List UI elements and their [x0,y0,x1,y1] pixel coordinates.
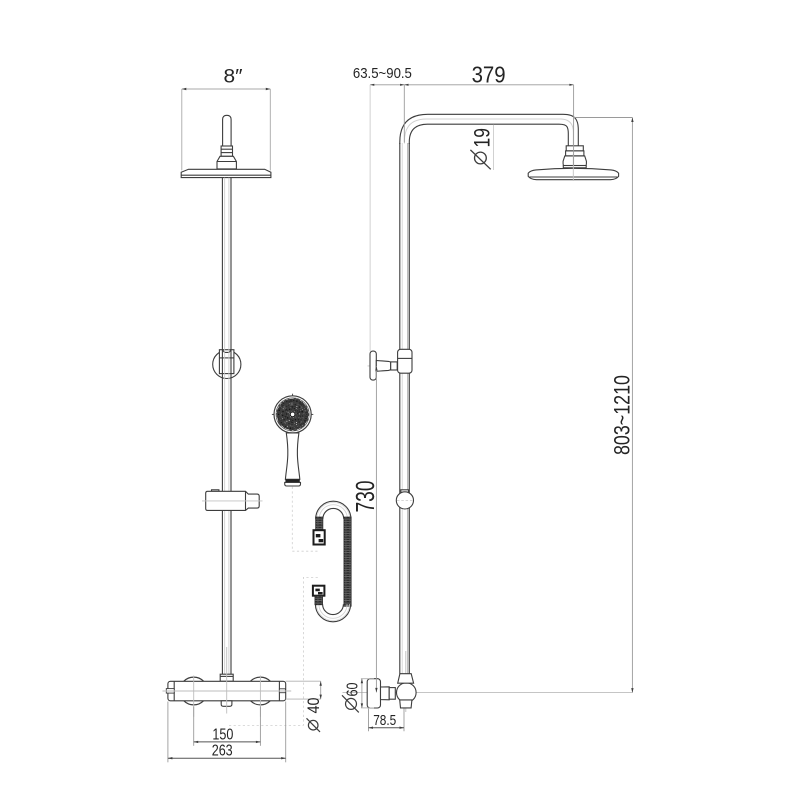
svg-text:263: 263 [212,743,233,760]
svg-text:730: 730 [350,481,380,513]
svg-text:150: 150 [212,726,233,743]
svg-text:8″: 8″ [224,67,243,88]
svg-text:803~1210: 803~1210 [610,375,635,455]
svg-text:63.5~90.5: 63.5~90.5 [353,65,412,82]
svg-text:19: 19 [470,128,495,148]
svg-text:379: 379 [472,62,506,88]
svg-text:78.5: 78.5 [373,712,396,729]
svg-text:40: 40 [305,698,323,714]
svg-text:60: 60 [345,682,362,696]
